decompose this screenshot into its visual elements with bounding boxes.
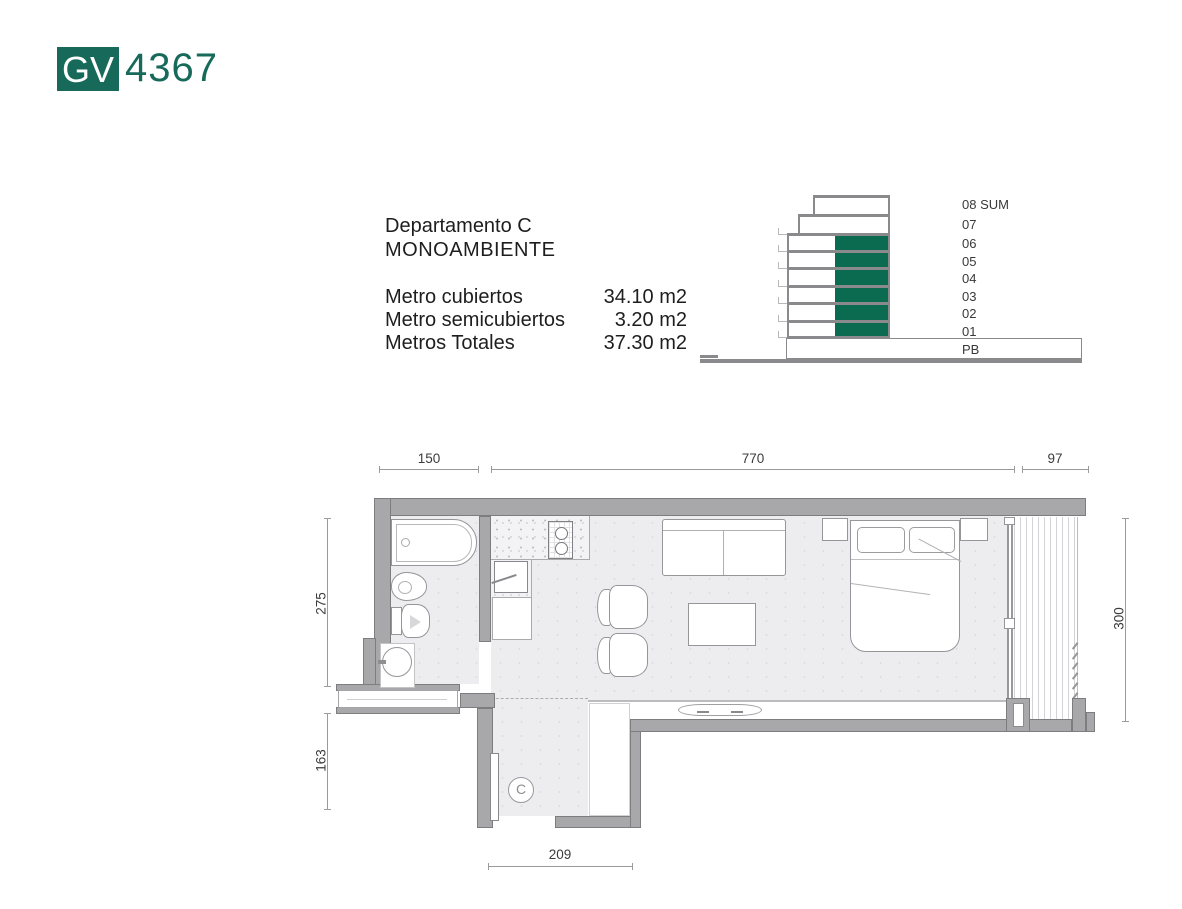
wall-entry-corner [460,693,495,708]
pillow [857,527,905,553]
dim-text-right-300: 300 [1112,589,1127,649]
floor-08-edge [813,195,815,215]
dim-text-left-163: 163 [314,731,329,791]
floor-label-08: 08 SUM [962,197,1009,212]
wall-entry-bottom [555,816,641,828]
bathtub-drain [401,538,410,547]
apartment-title: Departamento C [385,215,532,238]
floor-label-07: 07 [962,217,976,232]
floor-label-06: 06 [962,236,976,251]
wall-top [374,498,1086,516]
floor-07-edge [798,214,800,234]
wall-bath-kitchen [479,516,491,642]
entry-floor [493,701,588,816]
planter-unit [678,704,762,716]
bed-fold-line [851,583,930,595]
area-value: 34.10 m2 [604,286,687,309]
ground-step [700,355,718,358]
planter-mark [697,711,709,713]
glass-track-cap [1004,517,1015,525]
highlight-floor-01 [835,323,888,336]
dim-line-top-770 [491,469,1015,470]
toilet-bowl [401,604,430,638]
floor-slab [787,336,890,339]
floor-label-pb: PB [962,342,979,357]
bidet-basin [398,581,412,594]
floor-07-slab [798,214,890,217]
floor-label-02: 02 [962,306,976,321]
sofa-back-line [663,530,785,531]
bed-sheet-line [851,559,959,560]
kitchen-sink [494,561,528,593]
area-row: Metro cubiertos 34.10 m2 [385,286,687,309]
sofa [662,519,786,576]
nightstand-left [822,518,848,541]
kitchen-faucet [491,574,516,584]
balcony-edge-line [1077,517,1078,719]
area-label: Metro cubiertos [385,286,523,309]
bathroom-sink [382,647,412,677]
area-value: 37.30 m2 [604,332,687,355]
wall-entry-right [630,719,641,828]
unit-label-badge: C [508,777,534,803]
service-shaft [589,703,630,816]
cooktop [548,521,573,559]
wall-balcony-end-tab [1086,712,1095,732]
area-row: Metro semicubiertos 3.20 m2 [385,309,687,332]
logo-badge: GV [57,47,119,91]
highlight-floor-05 [835,253,888,267]
highlight-floor-03 [835,288,888,302]
pb-band [786,338,1082,359]
area-value: 3.20 m2 [615,309,687,332]
floor-plan-sheet: GV 4367 Departamento C MONOAMBIENTE Metr… [0,0,1182,909]
balcony-door [1013,703,1024,727]
wall-closet-bottom [336,707,460,714]
sink-faucet [378,660,386,664]
dim-text-left-275: 275 [314,574,329,634]
pillow [909,527,955,553]
bathtub [391,519,477,566]
dim-line-top-150 [379,469,479,470]
balcony-tick [778,262,787,269]
bed [850,520,960,652]
entry-closet [338,690,458,708]
balcony-tick [778,280,787,287]
dim-text-top-770: 770 [723,451,783,466]
nightstand-right [960,518,988,541]
cooktop-burner [555,542,568,555]
balcony-tick [778,297,787,304]
closet-shelf-line [347,699,447,700]
dim-line-bottom-209 [488,866,633,867]
armchair-seat [609,585,648,629]
ground-line [700,359,1082,363]
floor-08-slab [813,195,890,198]
glass-door-handle [1004,618,1015,629]
glass-facade-line [1007,517,1009,698]
armchair-seat [609,633,648,677]
floor-label-05: 05 [962,254,976,269]
coffee-table [688,603,756,646]
wall-balcony-end [1072,698,1086,732]
highlight-floor-06 [835,236,888,250]
sofa-cushion-line [723,530,724,575]
balcony-tick [778,315,787,322]
balcony-deck [1014,517,1076,719]
dim-line-top-97 [1022,469,1089,470]
wall-sink-niche [363,638,376,688]
balcony-tick [778,331,787,338]
area-label: Metros Totales [385,332,515,355]
toilet-bowl-inner [410,615,421,629]
floor-edge-line [588,700,1007,702]
dim-text-top-97: 97 [1025,451,1085,466]
apartment-subtitle: MONOAMBIENTE [385,239,555,262]
kitchen-cabinet [492,597,532,640]
highlight-floor-02 [835,305,888,320]
area-label: Metro semicubiertos [385,309,565,332]
floor-label-04: 04 [962,271,976,286]
floor-label-01: 01 [962,324,976,339]
kitchen-counter-top [491,516,590,560]
area-row: Metros Totales 37.30 m2 [385,332,687,355]
logo-code: 4367 [125,44,218,92]
dim-text-bottom-209: 209 [530,847,590,862]
glass-facade-line [1011,517,1013,698]
entry-door-leaf [490,753,499,821]
planter-mark [731,711,743,713]
floor-label-03: 03 [962,289,976,304]
balcony-tick [778,245,787,252]
balcony-tick [778,228,787,235]
highlight-floor-04 [835,270,888,285]
dim-text-top-150: 150 [399,451,459,466]
cooktop-burner [555,527,568,540]
